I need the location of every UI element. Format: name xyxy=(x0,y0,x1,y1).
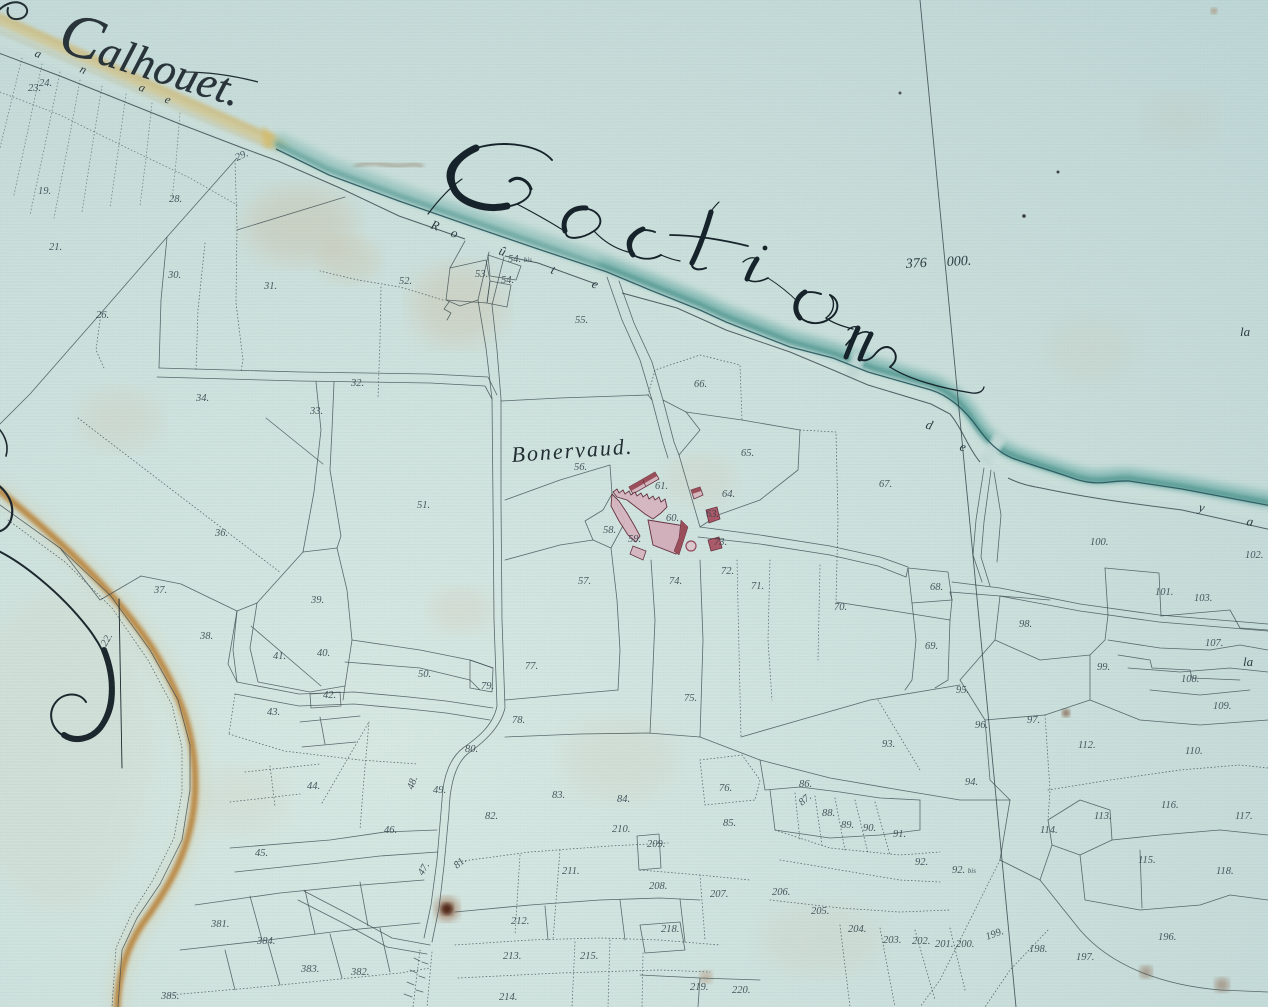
svg-text:210.: 210. xyxy=(612,824,630,835)
svg-text:88.: 88. xyxy=(822,808,835,819)
svg-text:44.: 44. xyxy=(307,781,320,792)
svg-text:381.: 381. xyxy=(210,919,229,930)
svg-text:209.: 209. xyxy=(647,839,665,850)
svg-text:383.: 383. xyxy=(300,964,319,975)
svg-text:43.: 43. xyxy=(267,707,280,718)
svg-text:33.: 33. xyxy=(309,406,323,417)
svg-text:50.: 50. xyxy=(418,669,431,680)
svg-text:118.: 118. xyxy=(1216,866,1234,877)
svg-text:75.: 75. xyxy=(684,693,697,704)
svg-text:42.: 42. xyxy=(323,690,336,701)
svg-text:92. bis: 92. bis xyxy=(952,865,976,876)
svg-text:89.: 89. xyxy=(841,820,854,831)
svg-text:211.: 211. xyxy=(562,866,580,877)
svg-text:196.: 196. xyxy=(1158,932,1176,943)
svg-text:30.: 30. xyxy=(167,270,181,281)
svg-text:45.: 45. xyxy=(255,848,268,859)
svg-text:99.: 99. xyxy=(1097,662,1110,673)
svg-text:103.: 103. xyxy=(1194,593,1212,604)
svg-text:117.: 117. xyxy=(1235,811,1253,822)
svg-text:198.: 198. xyxy=(1029,944,1047,955)
svg-text:28.: 28. xyxy=(169,194,182,205)
svg-text:95.: 95. xyxy=(956,685,969,696)
svg-text:80.: 80. xyxy=(465,744,478,755)
svg-text:108.: 108. xyxy=(1181,674,1199,685)
svg-text:61.: 61. xyxy=(655,481,668,492)
svg-text:218.: 218. xyxy=(661,924,679,935)
svg-text:385.: 385. xyxy=(160,991,179,1002)
svg-text:202.: 202. xyxy=(912,936,930,947)
svg-text:83.: 83. xyxy=(552,790,565,801)
svg-text:93.: 93. xyxy=(882,739,895,750)
svg-text:52.: 52. xyxy=(399,276,412,287)
svg-text:32.: 32. xyxy=(350,378,364,389)
svg-text:65.: 65. xyxy=(741,448,754,459)
svg-text:49.: 49. xyxy=(433,785,446,796)
svg-text:113.: 113. xyxy=(1094,811,1112,822)
svg-text:90.: 90. xyxy=(863,823,876,834)
svg-text:85.: 85. xyxy=(723,818,736,829)
svg-text:38.: 38. xyxy=(199,631,213,642)
svg-text:70.: 70. xyxy=(834,602,847,613)
svg-text:21.: 21. xyxy=(49,242,62,253)
svg-text:63.: 63. xyxy=(706,509,719,520)
svg-text:71.: 71. xyxy=(751,581,764,592)
svg-text:64.: 64. xyxy=(722,489,735,500)
svg-text:115.: 115. xyxy=(1138,855,1156,866)
svg-text:116.: 116. xyxy=(1161,800,1179,811)
svg-text:36.: 36. xyxy=(214,528,228,539)
svg-text:53.: 53. xyxy=(475,269,488,280)
svg-text:69.: 69. xyxy=(925,641,938,652)
svg-text:51.: 51. xyxy=(417,500,430,511)
svg-text:94.: 94. xyxy=(965,777,978,788)
svg-text:24.: 24. xyxy=(39,78,52,89)
svg-text:60.: 60. xyxy=(666,513,679,524)
svg-text:109.: 109. xyxy=(1213,701,1231,712)
svg-text:78.: 78. xyxy=(512,715,525,726)
svg-text:34.: 34. xyxy=(195,393,209,404)
svg-text:214.: 214. xyxy=(499,992,517,1003)
svg-text:59.: 59. xyxy=(628,534,641,545)
svg-text:100.: 100. xyxy=(1090,537,1108,548)
svg-text:67.: 67. xyxy=(879,479,892,490)
svg-text:201.: 201. xyxy=(935,939,953,950)
svg-text:68.: 68. xyxy=(930,582,943,593)
svg-text:72.: 72. xyxy=(721,566,734,577)
svg-text:58.: 58. xyxy=(603,525,616,536)
svg-text:77.: 77. xyxy=(525,661,538,672)
svg-text:101.: 101. xyxy=(1155,587,1173,598)
svg-text:204.: 204. xyxy=(848,924,866,935)
svg-text:84.: 84. xyxy=(617,794,630,805)
svg-text:220.: 220. xyxy=(732,985,750,996)
svg-text:40.: 40. xyxy=(317,648,330,659)
svg-text:39.: 39. xyxy=(310,595,324,606)
svg-text:102.: 102. xyxy=(1245,550,1263,561)
svg-text:207.: 207. xyxy=(710,889,728,900)
svg-text:212.: 212. xyxy=(511,916,529,927)
svg-text:114.: 114. xyxy=(1040,825,1058,836)
svg-text:205.: 205. xyxy=(811,906,829,917)
svg-text:74.: 74. xyxy=(669,576,682,587)
svg-text:55.: 55. xyxy=(575,315,588,326)
svg-text:82.: 82. xyxy=(485,811,498,822)
svg-text:203.: 203. xyxy=(883,935,901,946)
svg-text:31.: 31. xyxy=(263,281,277,292)
svg-text:219.: 219. xyxy=(690,982,708,993)
svg-text:37.: 37. xyxy=(153,585,167,596)
svg-text:46.: 46. xyxy=(384,825,397,836)
svg-text:208.: 208. xyxy=(649,881,667,892)
svg-text:384.: 384. xyxy=(256,936,275,947)
svg-text:66.: 66. xyxy=(694,379,707,390)
svg-text:213.: 213. xyxy=(503,951,521,962)
svg-text:54.: 54. xyxy=(501,275,514,286)
svg-text:215.: 215. xyxy=(580,951,598,962)
svg-text:97.: 97. xyxy=(1027,715,1040,726)
svg-text:112.: 112. xyxy=(1078,740,1096,751)
svg-text:000.: 000. xyxy=(946,254,971,270)
svg-text:86.: 86. xyxy=(799,779,812,790)
svg-text:382.: 382. xyxy=(350,967,369,978)
svg-text:110.: 110. xyxy=(1185,746,1203,757)
svg-text:19.: 19. xyxy=(38,186,51,197)
svg-text:200.: 200. xyxy=(956,939,974,950)
svg-text:91.: 91. xyxy=(893,829,906,840)
svg-text:98.: 98. xyxy=(1019,619,1032,630)
svg-text:107.: 107. xyxy=(1205,638,1223,649)
svg-text:la: la xyxy=(1240,324,1251,339)
svg-text:57.: 57. xyxy=(578,576,591,587)
svg-text:92.: 92. xyxy=(915,857,928,868)
svg-text:96.: 96. xyxy=(975,720,988,731)
svg-text:79.: 79. xyxy=(481,681,494,692)
svg-text:73.: 73. xyxy=(714,537,727,548)
svg-text:197.: 197. xyxy=(1076,952,1094,963)
svg-text:26.: 26. xyxy=(96,310,109,321)
svg-text:376: 376 xyxy=(904,256,927,272)
svg-text:la: la xyxy=(1243,654,1254,669)
svg-text:206.: 206. xyxy=(772,887,790,898)
svg-text:54. bis: 54. bis xyxy=(508,254,532,265)
svg-text:76.: 76. xyxy=(719,783,732,794)
svg-text:56.: 56. xyxy=(574,462,587,473)
svg-text:41.: 41. xyxy=(273,651,286,662)
